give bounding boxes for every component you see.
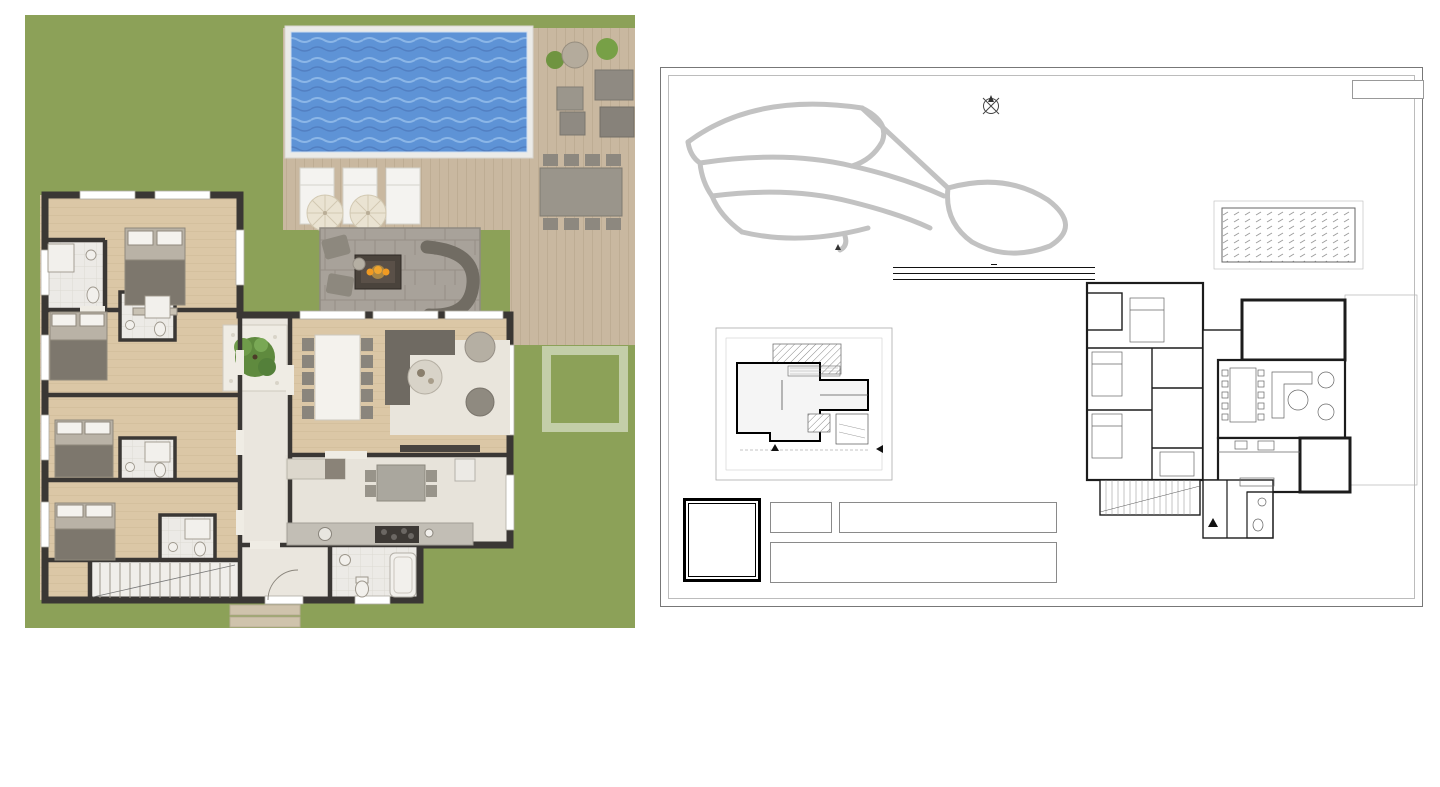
unit-number-box-inner bbox=[688, 503, 756, 577]
rule bbox=[893, 267, 1095, 268]
technical-sheet bbox=[0, 0, 1440, 787]
technical-floor-plan bbox=[1087, 201, 1417, 538]
areas-summary-box bbox=[770, 542, 1057, 583]
rule bbox=[893, 273, 1095, 274]
key-plan-otopark bbox=[836, 414, 868, 444]
site-plan bbox=[688, 104, 1066, 253]
room-count-box bbox=[770, 502, 832, 533]
terrace-hatched bbox=[1222, 208, 1355, 262]
page bbox=[0, 0, 1440, 787]
uygulama-stamp bbox=[1352, 80, 1424, 99]
plan-title-box bbox=[839, 502, 1057, 533]
site-roads bbox=[688, 104, 1066, 253]
plan-walls bbox=[1087, 283, 1350, 538]
net-areas-table bbox=[893, 253, 1095, 283]
rule bbox=[893, 279, 1095, 280]
site-entry-arrow bbox=[835, 244, 841, 250]
key-plan bbox=[716, 328, 892, 480]
unit-number-box bbox=[683, 498, 761, 582]
compass-icon bbox=[983, 95, 999, 114]
net-table-title bbox=[893, 253, 1095, 263]
